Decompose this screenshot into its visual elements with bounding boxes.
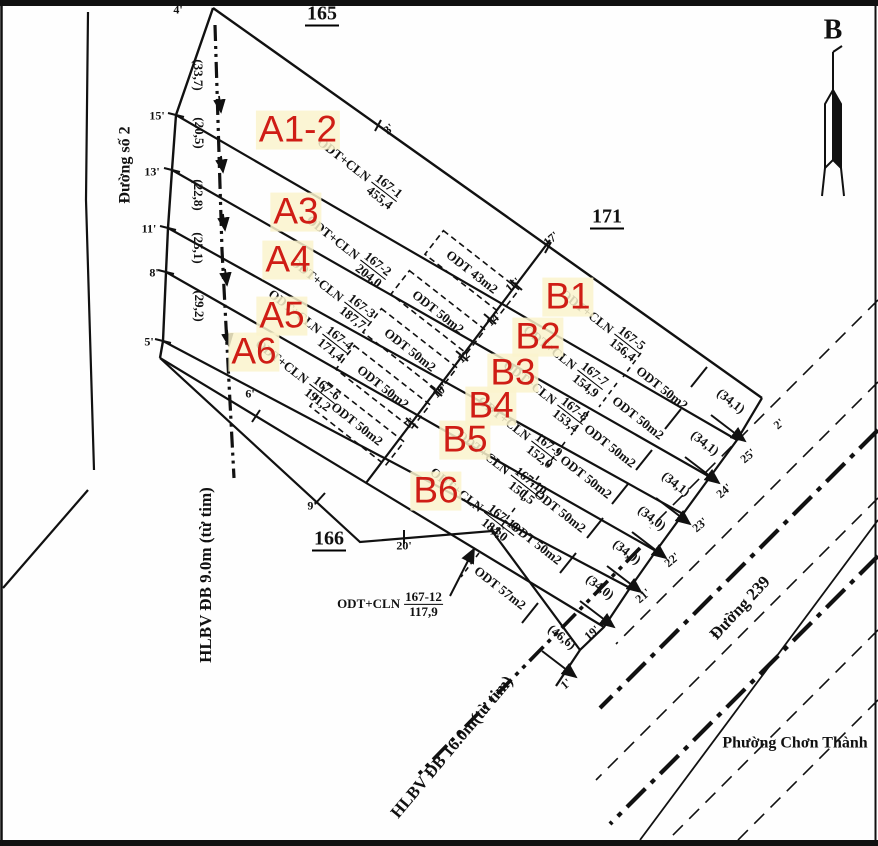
block-number: 166 bbox=[312, 529, 346, 552]
tick-left: 13' bbox=[144, 166, 159, 179]
tick-left: 11' bbox=[142, 223, 157, 236]
land-use-code: ODT+CLN bbox=[337, 597, 400, 611]
tick-left: 5' bbox=[144, 336, 153, 349]
east-staircase bbox=[556, 398, 762, 686]
road-west-edge bbox=[86, 12, 94, 470]
cadastral-map: A1-2A3A4A5A6B1B2B3B4B5B6ODT+CLN167-1455,… bbox=[0, 0, 878, 846]
frame-bottom bbox=[0, 840, 878, 846]
dimension-left: (20,5) bbox=[192, 117, 206, 148]
lot-tag-B6: B6 bbox=[410, 472, 461, 511]
tick-left: 9' bbox=[307, 500, 316, 513]
ward-name: Phường Chơn Thành bbox=[722, 736, 867, 753]
tick-left: 15' bbox=[149, 110, 164, 123]
dimension-left: (22,8) bbox=[191, 179, 205, 210]
lot-tag-B1: B1 bbox=[542, 278, 593, 317]
tick-left: 20' bbox=[396, 540, 411, 553]
tick-left: 6' bbox=[245, 388, 254, 401]
parcel-number: 167-12 bbox=[404, 590, 443, 605]
dimension-left: (33,7) bbox=[191, 59, 205, 90]
lot-tag-A4: A4 bbox=[262, 241, 313, 280]
street-name-duong-so-2: Đường số 2 bbox=[118, 126, 135, 203]
north-arrow-icon bbox=[822, 46, 844, 196]
tick-left: 18' bbox=[489, 525, 504, 538]
parcel-label-167-12: ODT+CLN167-12117,9 bbox=[337, 590, 443, 618]
lot-tag-A6: A6 bbox=[228, 333, 279, 372]
parcel-fraction: 167-12117,9 bbox=[404, 590, 443, 618]
boundary-branch bbox=[3, 490, 88, 588]
tick-left: 8' bbox=[149, 267, 158, 280]
parcel-12-leader-arrow bbox=[450, 549, 474, 596]
lot-tag-A1-2: A1-2 bbox=[256, 111, 340, 150]
lot-tag-B5: B5 bbox=[439, 421, 490, 460]
parcel-area: 117,9 bbox=[404, 605, 443, 619]
frame-top bbox=[0, 0, 878, 6]
dimension-left: (25,1) bbox=[191, 232, 205, 263]
tick-left: 4' bbox=[173, 4, 182, 17]
block-number: 171 bbox=[590, 207, 624, 230]
dimension-left: (29,2) bbox=[192, 290, 206, 321]
north-label: B bbox=[824, 15, 843, 44]
corridor-label-9m: HLBV ĐB 9.0m (từ tim) bbox=[197, 487, 215, 663]
lot-tag-A3: A3 bbox=[270, 193, 321, 232]
block-number: 165 bbox=[305, 4, 339, 27]
